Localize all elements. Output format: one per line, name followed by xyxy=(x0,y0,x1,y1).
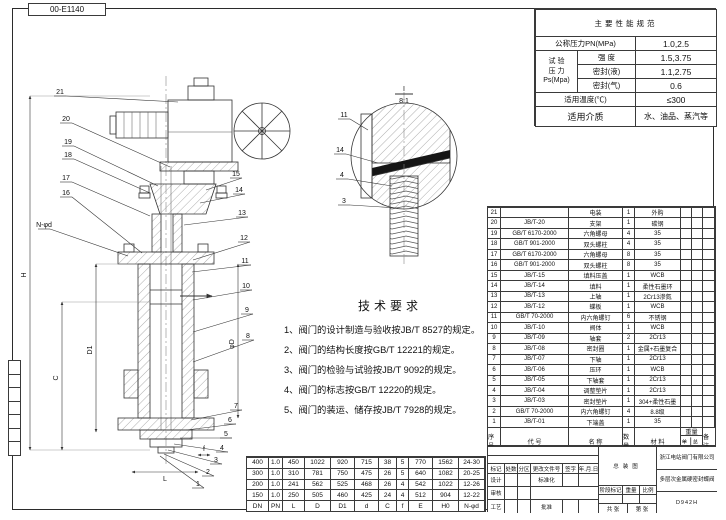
cell-1: JB/T-20 xyxy=(501,217,569,227)
cell-1: JB/T-01 xyxy=(501,416,569,426)
cell-5 xyxy=(681,333,692,343)
cell-4: 不锈钢 xyxy=(635,312,681,322)
cell-2: 压环 xyxy=(569,364,623,374)
cell-2: 阀体 xyxy=(569,322,623,332)
cell-0: 300 xyxy=(247,468,269,479)
cell-2: 下端盖 xyxy=(569,416,623,426)
cell-3: 4 xyxy=(623,228,635,238)
cell-0: 3 xyxy=(488,395,501,405)
product-name: 多层次金属硬密封蝶阀 xyxy=(656,469,717,492)
cell-1: 1.0 xyxy=(269,479,283,490)
cell-0: 18 xyxy=(488,238,501,248)
edge-cell xyxy=(9,402,20,416)
cell-6 xyxy=(692,228,703,238)
cell-1: PN xyxy=(269,500,283,511)
temperature-label: 适用温度(℃) xyxy=(535,92,636,107)
cell-4: 2Cr13 xyxy=(635,385,681,395)
technical-requirements: 技术要求 1、阀门的设计制造与验收按JB/T 8527的规定。 2、阀门的结构长… xyxy=(284,297,496,420)
cell-2: 450 xyxy=(283,457,305,468)
cell-4: 2Cr13 xyxy=(635,354,681,364)
edge-cell xyxy=(9,429,20,443)
bom-row: 8JB/T-08密封圈1金属+石墨复合 xyxy=(488,343,715,353)
cell-6 xyxy=(692,291,703,301)
cell-3: 1 xyxy=(623,301,635,311)
cell-0: 15 xyxy=(488,270,501,280)
cell-5: 475 xyxy=(355,468,379,479)
cell-7 xyxy=(703,217,715,227)
cell-0: 19 xyxy=(488,228,501,238)
drawing-number-box: 00-E1140 xyxy=(28,3,106,16)
cell-8: 542 xyxy=(409,479,433,490)
drawing-sheet: 00-E1140 xyxy=(0,0,726,520)
cell-7 xyxy=(703,385,715,395)
dimension-rows: 4001.04501022920715385770156224-303001.0… xyxy=(247,457,485,500)
cell-1: JB/T-15 xyxy=(501,270,569,280)
cell-1: JB/T-05 xyxy=(501,375,569,385)
drawing-number: 00-E1140 xyxy=(50,5,84,14)
cell-5 xyxy=(681,249,692,259)
cell-5 xyxy=(681,312,692,322)
dimension-row: 2001.0241562525468264542102212-26 xyxy=(247,479,485,490)
cell-2: 双头螺柱 xyxy=(569,259,623,269)
cell-7 xyxy=(703,270,715,280)
cell-1: JB/T-09 xyxy=(501,333,569,343)
cell-5 xyxy=(681,228,692,238)
cell-3: D xyxy=(305,500,331,511)
cell-3: 1 xyxy=(623,207,635,217)
technical-requirements-title: 技术要求 xyxy=(284,297,496,314)
process-date-cell xyxy=(517,499,531,513)
cell-3: 1 xyxy=(623,343,635,353)
cell-5 xyxy=(681,301,692,311)
cell-4: 2Cr13 xyxy=(635,375,681,385)
cell-2: 内六角螺钉 xyxy=(569,406,623,416)
cell-4: 碳钢 xyxy=(635,217,681,227)
process-label: 工艺 xyxy=(488,499,505,513)
cell-2: 六角螺母 xyxy=(569,249,623,259)
cell-6 xyxy=(692,259,703,269)
bom-rows: 21电装1外购20JB/T-20支架1碳钢19GB/T 6170-2000六角螺… xyxy=(488,207,715,427)
cell-5 xyxy=(681,259,692,269)
cell-5 xyxy=(681,354,692,364)
test-label-line: 试 验 xyxy=(549,57,565,67)
temperature-value: ≤300 xyxy=(635,92,717,107)
cell-2: 密封垫片 xyxy=(569,395,623,405)
cell-1 xyxy=(501,207,569,217)
cell-6 xyxy=(692,312,703,322)
cell-2: L xyxy=(283,500,305,511)
test-label-line: 压 力 xyxy=(549,67,565,77)
cell-3: 1 xyxy=(623,217,635,227)
bom-row: 7JB/T-07下轴12Cr13 xyxy=(488,354,715,364)
cell-5 xyxy=(681,395,692,405)
seal-liquid-label: 密封(液) xyxy=(577,64,636,79)
cell-5 xyxy=(681,207,692,217)
cell-0: 1 xyxy=(488,416,501,426)
bom-row: 18GB/T 901-2000双头螺柱435 xyxy=(488,238,715,248)
cell-0: 4 xyxy=(488,385,501,395)
cell-2: 支架 xyxy=(569,217,623,227)
cell-0: 20 xyxy=(488,217,501,227)
cell-0: 6 xyxy=(488,364,501,374)
cell-1: GB/T 901-2000 xyxy=(501,259,569,269)
company-name: 浙江电站阀门有限公司 xyxy=(656,447,717,470)
cell-2: 下轴 xyxy=(569,354,623,364)
bom-row: 5JB/T-05下轴套12Cr13 xyxy=(488,375,715,385)
cell-7 xyxy=(703,375,715,385)
cell-6 xyxy=(692,364,703,374)
cell-3: 8 xyxy=(623,249,635,259)
cell-2: 轴套 xyxy=(569,333,623,343)
dimension-row: 4001.04501022920715385770156224-30 xyxy=(247,457,485,468)
edge-cell xyxy=(9,375,20,389)
cell-4: 2Cr13渗氮 xyxy=(635,291,681,301)
cell-0: 200 xyxy=(247,479,269,490)
bom-row: 2GB/T 70-2000内六角螺钉48.8级 xyxy=(488,406,715,416)
cell-7: f xyxy=(397,500,409,511)
cell-5 xyxy=(681,343,692,353)
cell-7 xyxy=(703,291,715,301)
cell-3: 505 xyxy=(305,489,331,500)
cell-0: 14 xyxy=(488,280,501,290)
cell-3: 4 xyxy=(623,406,635,416)
tech-requirement-item: 2、阀门的结构长度按GB/T 12221的规定。 xyxy=(284,340,496,360)
bom-row: 9JB/T-09轴套22Cr13 xyxy=(488,333,715,343)
edge-cell xyxy=(9,361,20,375)
cell-5 xyxy=(681,217,692,227)
cell-5 xyxy=(681,280,692,290)
cell-7: 5 xyxy=(397,468,409,479)
edge-cell xyxy=(9,442,20,455)
cell-0: 9 xyxy=(488,333,501,343)
cell-8: 770 xyxy=(409,457,433,468)
cell-2: 电装 xyxy=(569,207,623,217)
cell-9: 1022 xyxy=(433,479,459,490)
cell-4: 920 xyxy=(331,457,355,468)
performance-spec-table: 主要性能规范 公称压力PN(MPa) 1.0,2.5 试 验 压 力 Ps(Mp… xyxy=(534,8,716,126)
cell-4: WCB xyxy=(635,364,681,374)
review-label: 审核 xyxy=(488,486,505,500)
cell-6 xyxy=(692,416,703,426)
cell-6 xyxy=(692,375,703,385)
bom-row: 14JB/T-14填料1柔性石墨环 xyxy=(488,280,715,290)
approve-sign-cell xyxy=(562,499,579,513)
cell-5 xyxy=(681,238,692,248)
cell-8: 512 xyxy=(409,489,433,500)
cell-4: 8.8级 xyxy=(635,406,681,416)
cell-5: 468 xyxy=(355,479,379,490)
cell-7 xyxy=(703,364,715,374)
cell-4: WCB xyxy=(635,322,681,332)
cell-7 xyxy=(703,207,715,217)
bom-row: 11GB/T 70-2000内六角螺钉6不锈钢 xyxy=(488,312,715,322)
cell-1: JB/T-13 xyxy=(501,291,569,301)
cell-7: 4 xyxy=(397,489,409,500)
bom-row: 10JB/T-10阀体1WCB xyxy=(488,322,715,332)
cell-7 xyxy=(703,354,715,364)
cell-9: 1082 xyxy=(433,468,459,479)
cell-9: H0 xyxy=(433,500,459,511)
cell-6 xyxy=(692,333,703,343)
cell-2: 内六角螺钉 xyxy=(569,312,623,322)
cell-1: GB/T 6170-2000 xyxy=(501,228,569,238)
cell-5 xyxy=(681,385,692,395)
cell-0: 16 xyxy=(488,259,501,269)
cell-0: 8 xyxy=(488,343,501,353)
cell-3: 1 xyxy=(623,364,635,374)
model-number: D942H xyxy=(656,491,717,513)
standard-date-cell xyxy=(578,473,599,487)
cell-8: 640 xyxy=(409,468,433,479)
cell-2: 六角螺母 xyxy=(569,228,623,238)
cell-1: GB/T 70-2000 xyxy=(501,312,569,322)
standardization-label: 标准化 xyxy=(530,473,563,487)
edge-cell xyxy=(9,415,20,429)
bom-row: 19GB/T 6170-2000六角螺母435 xyxy=(488,228,715,238)
cell-1: JB/T-08 xyxy=(501,343,569,353)
cell-6 xyxy=(692,343,703,353)
cell-4: 750 xyxy=(331,468,355,479)
cell-6: 24 xyxy=(379,489,397,500)
cell-0: 150 xyxy=(247,489,269,500)
cell-4: 外购 xyxy=(635,207,681,217)
seal-gas-value: 0.6 xyxy=(635,78,717,93)
nominal-pressure-label: 公称压力PN(MPa) xyxy=(535,36,636,51)
cell-9: 904 xyxy=(433,489,459,500)
process-sign-cell xyxy=(504,499,518,513)
cell-0: 5 xyxy=(488,375,501,385)
design-date-cell xyxy=(517,473,531,487)
test-label-line: Ps(Mpa) xyxy=(543,76,569,86)
cell-4: 金属+石墨复合 xyxy=(635,343,681,353)
sheet-number-label: 第 张 xyxy=(627,503,657,513)
cell-6 xyxy=(692,385,703,395)
cell-1: JB/T-03 xyxy=(501,395,569,405)
cell-6 xyxy=(692,238,703,248)
cell-5 xyxy=(681,322,692,332)
review-empty-cell xyxy=(530,486,599,500)
cell-1: 1.0 xyxy=(269,468,283,479)
approve-label: 批准 xyxy=(530,499,563,513)
nominal-pressure-value: 1.0,2.5 xyxy=(635,36,717,51)
cell-6 xyxy=(692,354,703,364)
cell-6: 26 xyxy=(379,468,397,479)
cell-3: 8 xyxy=(623,259,635,269)
cell-3: 1 xyxy=(623,416,635,426)
cell-3: 1 xyxy=(623,322,635,332)
cell-0: 2 xyxy=(488,406,501,416)
cell-5: d xyxy=(355,500,379,511)
design-label: 设计 xyxy=(488,473,505,487)
cell-6 xyxy=(692,207,703,217)
cell-3: 1 xyxy=(623,395,635,405)
dimension-header-row: DNPNLDD1dCfEH0N-φd xyxy=(247,500,485,511)
cell-5: 715 xyxy=(355,457,379,468)
cell-3: 2 xyxy=(623,333,635,343)
cell-10: 12-22 xyxy=(459,489,485,500)
cell-8: E xyxy=(409,500,433,511)
cell-5 xyxy=(681,406,692,416)
dimension-table: 4001.04501022920715385770156224-303001.0… xyxy=(246,456,486,512)
cell-4: 525 xyxy=(331,479,355,490)
bom-row: 15JB/T-15填料压盖1WCB xyxy=(488,270,715,280)
cell-3: 4 xyxy=(623,238,635,248)
cell-0: 13 xyxy=(488,291,501,301)
cell-3: 781 xyxy=(305,468,331,479)
cell-4: 2Cr13 xyxy=(635,333,681,343)
cell-7 xyxy=(703,406,715,416)
cell-2: 241 xyxy=(283,479,305,490)
cell-7 xyxy=(703,322,715,332)
cell-2: 填料 xyxy=(569,280,623,290)
cell-7 xyxy=(703,259,715,269)
cell-4: 35 xyxy=(635,416,681,426)
cell-10: 12-26 xyxy=(459,479,485,490)
cell-7 xyxy=(703,238,715,248)
strength-value: 1.5,3.75 xyxy=(635,50,717,65)
cell-4: 柔性石墨环 xyxy=(635,280,681,290)
cell-7 xyxy=(703,333,715,343)
cell-7 xyxy=(703,228,715,238)
cell-4: WCB xyxy=(635,301,681,311)
cell-5 xyxy=(681,416,692,426)
dimension-header: DNPNLDD1dCfEH0N-φd xyxy=(247,500,485,511)
edge-cell xyxy=(9,388,20,402)
review-sign-cell xyxy=(504,486,518,500)
seal-gas-label: 密封(气) xyxy=(577,78,636,93)
cell-2: 下轴套 xyxy=(569,375,623,385)
cell-6 xyxy=(692,322,703,332)
cell-1: JB/T-14 xyxy=(501,280,569,290)
standard-sign-cell xyxy=(562,473,579,487)
cell-4: 35 xyxy=(635,259,681,269)
cell-1: GB/T 901-2000 xyxy=(501,238,569,248)
cell-7 xyxy=(703,395,715,405)
cell-4: 460 xyxy=(331,489,355,500)
cell-7 xyxy=(703,301,715,311)
approve-date-cell xyxy=(578,499,599,513)
cell-7: 5 xyxy=(397,457,409,468)
cell-10: N-φd xyxy=(459,500,485,511)
cell-2: 填料压盖 xyxy=(569,270,623,280)
spec-table-title: 主要性能规范 xyxy=(535,9,717,37)
cell-10: 24-30 xyxy=(459,457,485,468)
medium-value: 水、油品、蒸汽等 xyxy=(635,106,717,127)
edge-reference-strip xyxy=(8,360,21,456)
cell-0: 11 xyxy=(488,312,501,322)
cell-1: 1.0 xyxy=(269,457,283,468)
bom-row: 21电装1外购 xyxy=(488,207,715,217)
cell-0: 17 xyxy=(488,249,501,259)
cell-6 xyxy=(692,217,703,227)
cell-6 xyxy=(692,270,703,280)
bill-of-materials: 21电装1外购20JB/T-20支架1碳钢19GB/T 6170-2000六角螺… xyxy=(487,206,716,446)
cell-1: JB/T-06 xyxy=(501,364,569,374)
drawing-title: 总装图 xyxy=(598,447,657,486)
cell-6 xyxy=(692,395,703,405)
cell-0: 10 xyxy=(488,322,501,332)
cell-1: GB/T 6170-2000 xyxy=(501,249,569,259)
cell-4: D1 xyxy=(331,500,355,511)
cell-3: 1 xyxy=(623,291,635,301)
bom-row: 6JB/T-06压环1WCB xyxy=(488,364,715,374)
bom-row: 13JB/T-13上轴12Cr13渗氮 xyxy=(488,291,715,301)
cell-4: 304+柔性石墨 xyxy=(635,395,681,405)
cell-5 xyxy=(681,375,692,385)
cell-7 xyxy=(703,312,715,322)
cell-3: 1 xyxy=(623,354,635,364)
medium-label: 适用介质 xyxy=(535,106,636,127)
cell-3: 1022 xyxy=(305,457,331,468)
cell-5 xyxy=(681,291,692,301)
cell-2: 上轴 xyxy=(569,291,623,301)
cell-1: JB/T-12 xyxy=(501,301,569,311)
cell-7 xyxy=(703,280,715,290)
cell-5 xyxy=(681,364,692,374)
cell-5: 425 xyxy=(355,489,379,500)
cell-7 xyxy=(703,343,715,353)
cell-2: 密封圈 xyxy=(569,343,623,353)
dimension-row: 3001.0310781750475265640108220-25 xyxy=(247,468,485,479)
bom-row: 17GB/T 6170-2000六角螺母835 xyxy=(488,249,715,259)
cell-5 xyxy=(681,270,692,280)
seal-liquid-value: 1.1,2.75 xyxy=(635,64,717,79)
bom-header-weight-label: 重量 xyxy=(681,428,702,436)
design-sign-cell xyxy=(504,473,518,487)
cell-6: 38 xyxy=(379,457,397,468)
cell-3: 6 xyxy=(623,312,635,322)
cell-4: 35 xyxy=(635,238,681,248)
cell-4: 35 xyxy=(635,249,681,259)
cell-6 xyxy=(692,249,703,259)
cell-1: JB/T-07 xyxy=(501,354,569,364)
bom-row: 12JB/T-12蝶板1WCB xyxy=(488,301,715,311)
cell-7: 4 xyxy=(397,479,409,490)
cell-6 xyxy=(692,301,703,311)
review-date-cell xyxy=(517,486,531,500)
cell-2: 蝶板 xyxy=(569,301,623,311)
bom-header: 序号 代 号 名 称 数量 材 料 重量 单件 总计 备注 xyxy=(488,427,715,445)
cell-4: WCB xyxy=(635,270,681,280)
bom-row: 16GB/T 901-2000双头螺柱835 xyxy=(488,259,715,269)
test-pressure-label: 试 验 压 力 Ps(Mpa) xyxy=(535,50,578,93)
cell-2: 双头螺柱 xyxy=(569,238,623,248)
cell-7 xyxy=(703,249,715,259)
tech-requirement-item: 4、阀门的标志按GB/T 12220的规定。 xyxy=(284,380,496,400)
cell-7 xyxy=(703,416,715,426)
tech-requirement-item: 1、阀门的设计制造与验收按JB/T 8527的规定。 xyxy=(284,320,496,340)
tech-requirement-item: 5、阀门的装运、储存按JB/T 7928的规定。 xyxy=(284,400,496,420)
bom-row: 3JB/T-03密封垫片1304+柔性石墨 xyxy=(488,395,715,405)
cell-1: JB/T-10 xyxy=(501,322,569,332)
cell-2: 250 xyxy=(283,489,305,500)
cell-6 xyxy=(692,280,703,290)
cell-3: 562 xyxy=(305,479,331,490)
bom-row: 4JB/T-04调整垫片12Cr13 xyxy=(488,385,715,395)
cell-10: 20-25 xyxy=(459,468,485,479)
cell-6: C xyxy=(379,500,397,511)
cell-1: GB/T 70-2000 xyxy=(501,406,569,416)
cell-3: 1 xyxy=(623,280,635,290)
bom-row: 1JB/T-01下端盖135 xyxy=(488,416,715,426)
cell-6 xyxy=(692,406,703,416)
cell-0: 21 xyxy=(488,207,501,217)
cell-1: JB/T-04 xyxy=(501,385,569,395)
cell-3: 1 xyxy=(623,375,635,385)
cell-0: DN xyxy=(247,500,269,511)
tech-requirement-item: 3、阀门的检验与试验按JB/T 9092的规定。 xyxy=(284,360,496,380)
dimension-row: 1501.025050546042524451290412-22 xyxy=(247,489,485,500)
